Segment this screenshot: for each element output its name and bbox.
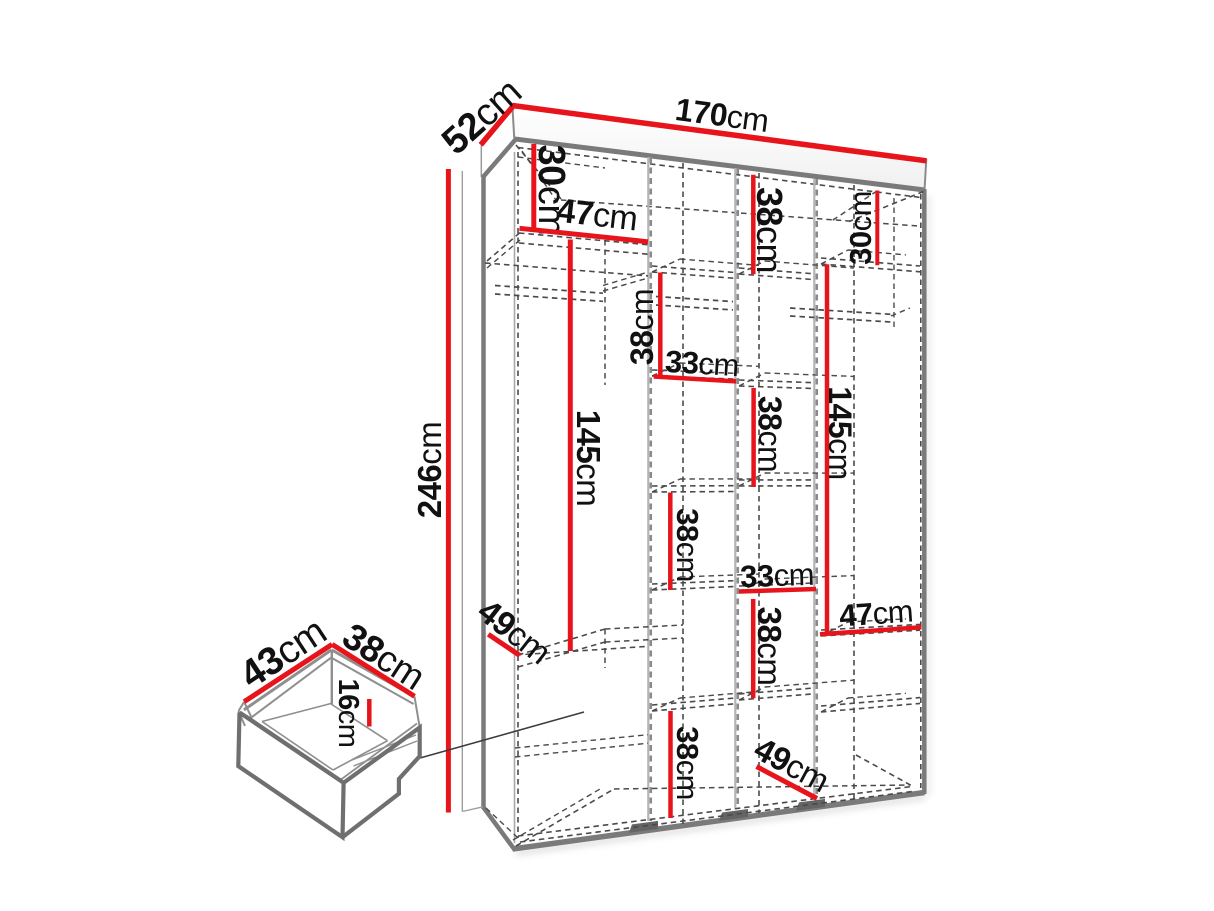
svg-text:145cm: 145cm [571,410,608,507]
svg-text:33cm: 33cm [664,343,740,382]
svg-text:33cm: 33cm [740,556,815,594]
svg-text:16cm: 16cm [332,679,364,748]
svg-text:47cm: 47cm [838,593,914,633]
svg-text:30cm: 30cm [843,191,878,265]
svg-text:38cm: 38cm [671,726,706,800]
svg-text:38cm: 38cm [750,187,791,273]
svg-text:246cm: 246cm [411,422,448,519]
svg-text:145cm: 145cm [822,386,858,480]
svg-text:38cm: 38cm [671,508,706,582]
svg-text:38cm: 38cm [752,607,789,686]
svg-text:38cm: 38cm [624,289,660,365]
svg-text:38cm: 38cm [752,396,788,472]
